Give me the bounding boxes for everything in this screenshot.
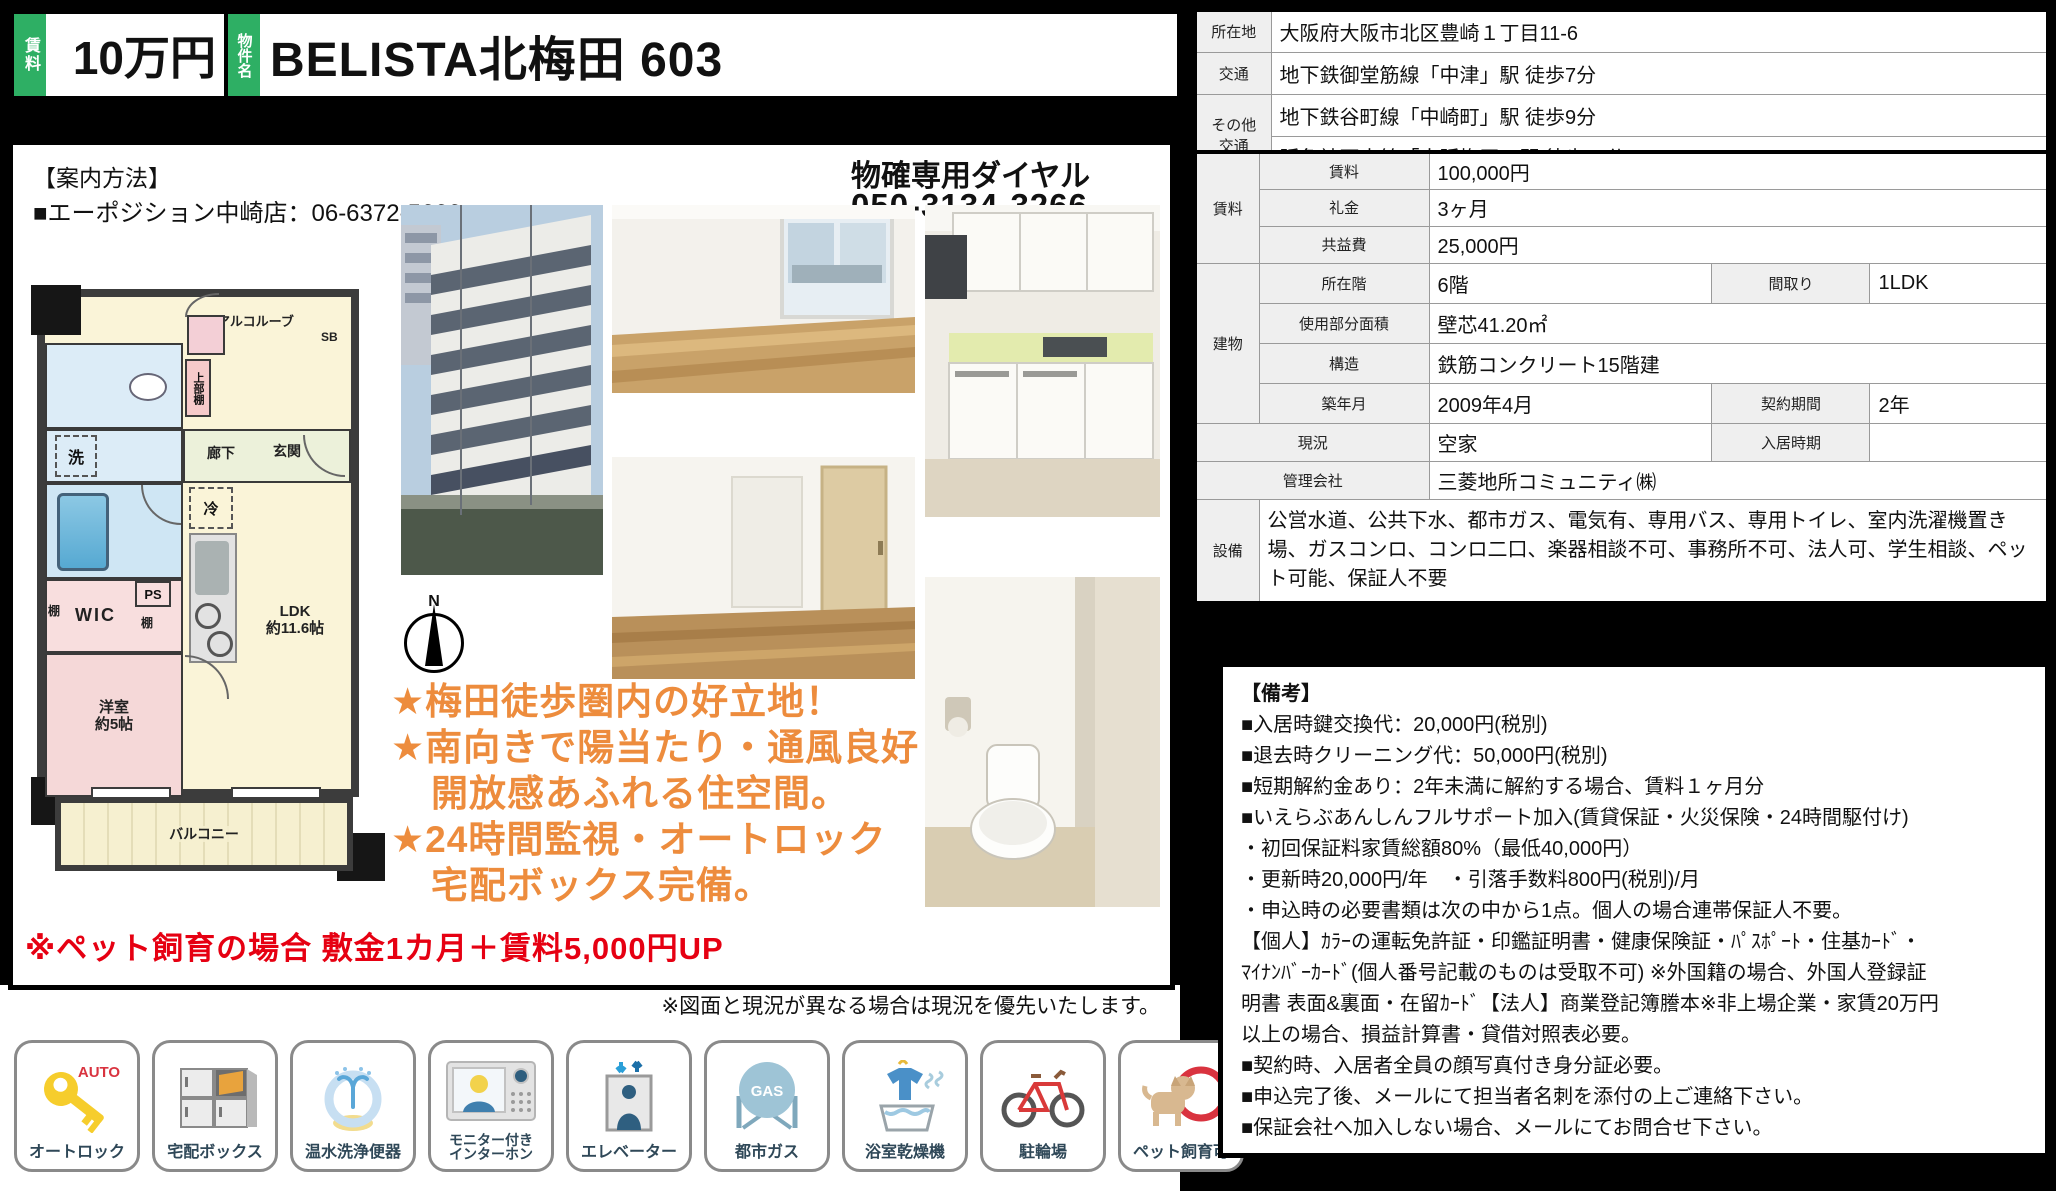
washlet-icon <box>293 1043 413 1145</box>
elevator-icon <box>569 1043 689 1145</box>
transit-value: 地下鉄御堂筋線「中津」駅 徒歩7分 <box>1271 52 2048 94</box>
remarks-line: 【個人】ｶﾗｰの運転免許証・印鑑証明書・健康保険証・ﾊﾟｽﾎﾟｰﾄ・住基ｶｰﾄﾞ… <box>1241 927 2027 958</box>
structure-value: 鉄筋コンクリート15階建 <box>1429 343 2048 383</box>
compass-needle <box>425 604 443 666</box>
closet <box>187 315 225 355</box>
status-label: 現況 <box>1195 423 1429 461</box>
area-value: 壁芯41.20㎡ <box>1429 303 2048 343</box>
rent-label: 賃料 <box>1259 152 1429 189</box>
highlight-line: ★24時間監視・オートロック <box>391 817 919 863</box>
remarks-line: ■保証会社へ加入しない場合、メールにてお問合せ下さい。 <box>1241 1113 2027 1144</box>
svg-text:AUTO: AUTO <box>78 1064 121 1081</box>
common-fee-label: 共益費 <box>1259 226 1429 263</box>
disclaimer-note: ※図面と現況が異なる場合は現況を優先いたします。 <box>0 990 1160 1020</box>
bath-dryer-icon <box>845 1043 965 1145</box>
photo-building-exterior <box>401 205 603 575</box>
amenity-bicycle-parking: 駐輪場 <box>980 1040 1106 1172</box>
contract-term-label: 契約期間 <box>1712 383 1870 423</box>
city-gas-icon: GAS <box>707 1043 827 1145</box>
photo-kitchen <box>925 205 1160 517</box>
room-label-shelf-left: 棚 <box>48 605 60 619</box>
room-label-ps: PS <box>135 581 171 607</box>
highlight-line: 宅配ボックス完備。 <box>391 863 919 909</box>
room-label-shelf-right: 棚 <box>141 617 153 631</box>
remarks-line: ■申込完了後、メールにて担当者名刺を添付の上ご連絡下さい。 <box>1241 1082 2027 1113</box>
built-label: 築年月 <box>1259 383 1429 423</box>
property-name-tag: 物件名 <box>228 14 260 96</box>
room-label-ldk: LDK 約11.6帖 <box>239 603 351 638</box>
highlight-line: ★梅田徒歩圏内の好立地！ <box>391 679 919 725</box>
layout-label: 間取り <box>1712 263 1870 303</box>
rent-group-label: 賃料 <box>1195 152 1259 263</box>
rent-tag: 賃料 <box>14 14 46 96</box>
highlight-line: 開放感あふれる住空間。 <box>391 771 919 817</box>
kitchen-sink <box>195 541 229 595</box>
room-label-upper-shelf: 上部棚 <box>185 359 211 417</box>
building-group-label: 建物 <box>1195 263 1259 423</box>
key-money-label: 礼金 <box>1259 189 1429 226</box>
room-label-fridge: 冷 <box>189 487 233 529</box>
amenity-washlet: 温水洗浄便器 <box>290 1040 416 1172</box>
remarks-box: 【備考】 ■入居時鍵交換代：20,000円(税別) ■退去時クリーニング代：50… <box>1218 662 2050 1158</box>
stove-burner <box>207 631 233 657</box>
remarks-line: 明書 表面&裏面・在留ｶｰﾄﾞ【法人】商業登記簿謄本※非上場企業・家賃20万円 <box>1241 989 2027 1020</box>
floor-plan: アルコルーブ SB 上部棚 洗 棚 WIC PS 棚 廊下 玄関 冷 <box>31 285 371 885</box>
highlight-text: ★梅田徒歩圏内の好立地！ ★南向きで陽当たり・通風良好 開放感あふれる住空間。 … <box>391 679 919 909</box>
photo-toilet <box>925 577 1160 907</box>
amenity-delivery-box: 宅配ボックス <box>152 1040 278 1172</box>
guide-title: 【案内方法】 <box>33 159 171 193</box>
structure-label: 構造 <box>1259 343 1429 383</box>
remarks-line: ・申込時の必要書類は次の中から1点。個人の場合連帯保証人不要。 <box>1241 896 2027 927</box>
rent-value: 100,000円 <box>1429 152 2048 189</box>
remarks-title: 【備考】 <box>1241 679 2027 710</box>
room-label-entrance: 玄関 <box>273 443 301 459</box>
remarks-line: ■契約時、入居者全員の顔写真付き身分証必要。 <box>1241 1051 2027 1082</box>
room-label-sb: SB <box>321 331 338 345</box>
header-bar: 賃料 10万円 物件名 BELISTA北梅田 603 <box>8 8 1183 102</box>
flyer-page: 賃料 10万円 物件名 BELISTA北梅田 603 【案内方法】 ■エーポジシ… <box>0 0 2056 1191</box>
floor-label: 所在階 <box>1259 263 1429 303</box>
other-transit-value-1: 地下鉄谷町線「中崎町」駅 徒歩9分 <box>1271 94 2048 136</box>
location-label: 所在地 <box>1195 10 1271 52</box>
rent-value: 10万円 <box>46 14 228 96</box>
movein-label: 入居時期 <box>1712 423 1870 461</box>
room-label-hallway: 廊下 <box>207 445 235 461</box>
balcony: バルコニー <box>55 797 353 871</box>
remarks-line: ■短期解約金あり：2年未満に解約する場合、賃料１ヶ月分 <box>1241 772 2027 803</box>
bathtub <box>57 493 109 571</box>
svg-text:GAS: GAS <box>751 1083 784 1100</box>
photo-bedroom <box>612 457 915 679</box>
pet-note: ※ペット飼育の場合 敷金1カ月＋賃料5,000円UP <box>25 923 724 968</box>
management-label: 管理会社 <box>1195 461 1429 499</box>
toilet-shape <box>129 373 167 401</box>
remarks-line: ■入居時鍵交換代：20,000円(税別) <box>1241 710 2027 741</box>
remarks-line: ・更新時20,000円/年 ・引落手数料800円(税別)/月 <box>1241 865 2027 896</box>
room-label-bedroom: 洋室 約5帖 <box>45 699 183 734</box>
key-money-value: 3ヶ月 <box>1429 189 2048 226</box>
amenity-row: AUTO オートロック <box>14 1040 1244 1172</box>
equipment-value: 公営水道、公共下水、都市ガス、電気有、専用バス、専用トイレ、室内洗濯機置き場、ガ… <box>1259 499 2048 603</box>
location-value: 大阪府大阪市北区豊崎１丁目11-6 <box>1271 10 2048 52</box>
equipment-label: 設備 <box>1195 499 1259 603</box>
area-label: 使用部分面積 <box>1259 303 1429 343</box>
remarks-line: ﾏｲﾅﾝﾊﾞｰｶｰﾄﾞ(個人番号記載のものは受取不可) ※外国籍の場合、外国人登… <box>1241 958 2027 989</box>
amenity-bath-dryer: 浴室乾燥機 <box>842 1040 968 1172</box>
amenity-intercom: モニター付き インターホン <box>428 1040 554 1172</box>
common-fee-value: 25,000円 <box>1429 226 2048 263</box>
remarks-line: ■退去時クリーニング代：50,000円(税別) <box>1241 741 2027 772</box>
bicycle-icon <box>983 1043 1103 1145</box>
built-value: 2009年4月 <box>1429 383 1712 423</box>
detail-table: 賃料 賃料 100,000円 礼金 3ヶ月 共益費 25,000円 建物 所在階… <box>1193 150 2050 605</box>
amenity-elevator: エレベーター <box>566 1040 692 1172</box>
room-label-laundry: 洗 <box>55 435 97 477</box>
guide-agent-phone: ■エーポジション中崎店：06-6372-5666 <box>33 193 461 228</box>
remarks-line: ・初回保証料家賃総額80%（最低40,000円） <box>1241 834 2027 865</box>
layout-value: 1LDK <box>1870 263 2048 303</box>
transit-label: 交通 <box>1195 52 1271 94</box>
management-value: 三菱地所コミュニティ㈱ <box>1429 461 2048 499</box>
photo-living-room <box>612 205 915 393</box>
delivery-box-icon <box>155 1043 275 1145</box>
movein-value <box>1870 423 2048 461</box>
property-name: BELISTA北梅田 603 <box>260 14 1177 96</box>
main-panel: 【案内方法】 ■エーポジション中崎店：06-6372-5666 物確専用ダイヤル… <box>8 140 1175 990</box>
amenity-autolock: AUTO オートロック <box>14 1040 140 1172</box>
highlight-line: ★南向きで陽当たり・通風良好 <box>391 725 919 771</box>
floor-value: 6階 <box>1429 263 1712 303</box>
key-auto-icon: AUTO <box>17 1043 137 1145</box>
room-label-wic: WIC <box>75 605 116 626</box>
room-label-alcove: アルコルーブ <box>217 315 294 330</box>
remarks-line: ■いえらぶあんしんフルサポート加入(賃貸保証・火災保険・24時間駆付け) <box>1241 803 2027 834</box>
status-value: 空家 <box>1429 423 1712 461</box>
stove-burner <box>195 603 221 629</box>
intercom-icon <box>431 1043 551 1133</box>
amenity-city-gas: GAS 都市ガス <box>704 1040 830 1172</box>
remarks-line: 以上の場合、損益計算書・貸借対照表必要。 <box>1241 1020 2027 1051</box>
pillar <box>31 285 81 335</box>
room-label-balcony: バルコニー <box>165 826 243 842</box>
contract-term-value: 2年 <box>1870 383 2048 423</box>
